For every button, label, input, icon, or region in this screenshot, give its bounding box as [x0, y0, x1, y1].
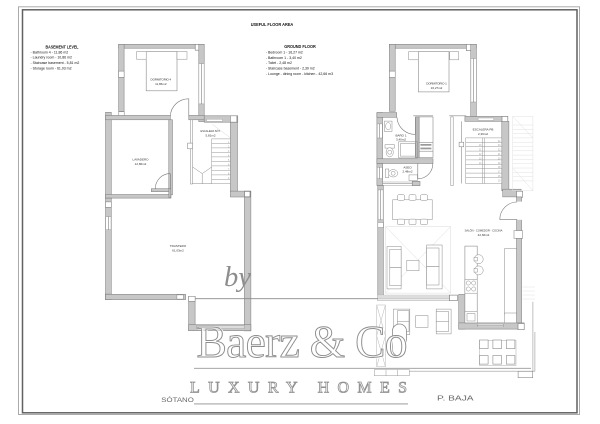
svg-text:by: by [224, 262, 251, 293]
svg-text:2,39m2: 2,39m2 [478, 132, 488, 136]
svg-text:- Bedroom 1 - 16,27 m2: - Bedroom 1 - 16,27 m2 [266, 50, 303, 54]
svg-text:12,86m2: 12,86m2 [135, 162, 147, 166]
svg-text:- Staircase basement - 5,81 m2: - Staircase basement - 5,81 m2 [31, 61, 80, 65]
svg-text:42,66m2: 42,66m2 [478, 233, 490, 237]
svg-text:P. BAJA: P. BAJA [437, 393, 474, 402]
svg-text:TRASTERO: TRASTERO [170, 244, 187, 248]
svg-text:LAVADERO: LAVADERO [133, 157, 150, 161]
svg-text:DORMITORIO 1: DORMITORIO 1 [426, 81, 447, 85]
svg-text:61,03m2: 61,03m2 [172, 249, 184, 253]
svg-text:USEFUL FLOOR AREA: USEFUL FLOOR AREA [251, 22, 294, 27]
svg-text:- Staircase basement - 2,39 m2: - Staircase basement - 2,39 m2 [266, 67, 315, 71]
svg-text:GROUND FLOOR: GROUND FLOOR [284, 44, 316, 49]
svg-text:Baerz & Co: Baerz & Co [197, 316, 408, 367]
svg-text:- Bathroom 4 - 11,86 m2: - Bathroom 4 - 11,86 m2 [31, 50, 69, 54]
svg-text:BASEMENT LEVEL: BASEMENT LEVEL [46, 44, 79, 49]
svg-text:SALÓN - COMEDOR - COCINA: SALÓN - COMEDOR - COCINA [465, 228, 503, 233]
svg-text:2,48m2: 2,48m2 [402, 170, 412, 174]
svg-text:- Laundry room - 10,86 m2: - Laundry room - 10,86 m2 [31, 56, 72, 60]
svg-text:- Bathroom 1 - 3,40 m2: - Bathroom 1 - 3,40 m2 [266, 56, 302, 60]
svg-text:- Storage room - 61,03 m2: - Storage room - 61,03 m2 [31, 67, 72, 71]
svg-text:3,40m2: 3,40m2 [396, 138, 406, 142]
svg-text:ESCALERA PB: ESCALERA PB [473, 128, 494, 132]
svg-text:- Toilet - 2,48 m2: - Toilet - 2,48 m2 [266, 61, 292, 65]
svg-text:SÓTANO: SÓTANO [161, 397, 194, 404]
svg-text:5,81m2: 5,81m2 [205, 133, 215, 137]
svg-text:BAÑO 1: BAÑO 1 [395, 132, 406, 137]
svg-text:DORMITORIO 4: DORMITORIO 4 [151, 77, 172, 81]
svg-text:11,86m2: 11,86m2 [155, 82, 167, 86]
svg-text:- Lounge - dining room - kitch: - Lounge - dining room - kitchen - 42,66… [266, 72, 333, 76]
svg-text:ESCALERA SÓT.: ESCALERA SÓT. [201, 128, 221, 133]
svg-text:16,27m2: 16,27m2 [431, 86, 443, 90]
